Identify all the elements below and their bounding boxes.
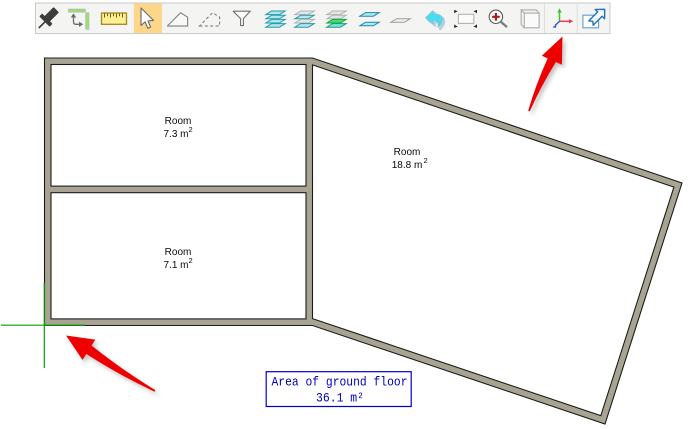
svg-text:Room: Room — [165, 116, 192, 127]
svg-text:2: 2 — [189, 125, 193, 134]
svg-text:Room: Room — [394, 147, 421, 158]
svg-text:36.1 m²: 36.1 m² — [316, 390, 364, 405]
svg-text:18.8 m: 18.8 m — [392, 160, 423, 171]
svg-text:Room: Room — [165, 247, 192, 258]
svg-text:Area of ground floor: Area of ground floor — [272, 374, 408, 389]
svg-text:2: 2 — [189, 256, 193, 265]
svg-text:7.3 m: 7.3 m — [163, 129, 188, 140]
svg-text:7.1 m: 7.1 m — [163, 260, 188, 271]
svg-text:2: 2 — [424, 156, 428, 165]
